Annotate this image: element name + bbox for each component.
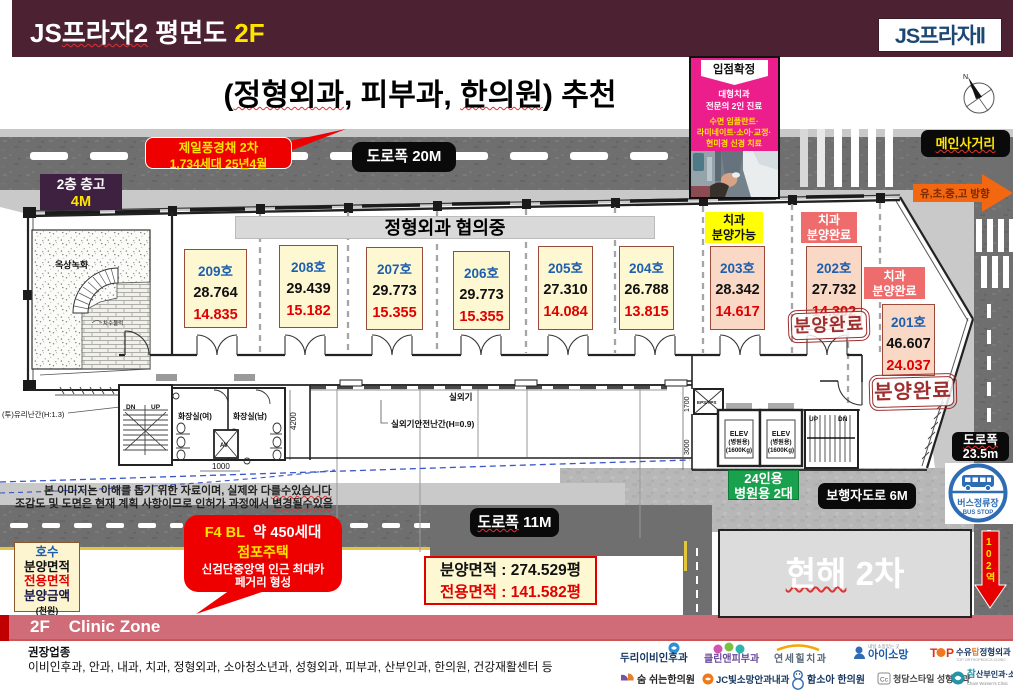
svg-text:Cham Women's Clinic: Cham Women's Clinic — [967, 681, 1008, 686]
svg-text:(1600Kg): (1600Kg) — [768, 447, 794, 454]
svg-text:JC빛소망안과내과: JC빛소망안과내과 — [716, 674, 790, 686]
svg-text:1000: 1000 — [212, 462, 230, 471]
svg-text:참: 참 — [967, 668, 976, 680]
svg-text:라미네이트·소아·교정·: 라미네이트·소아·교정· — [697, 127, 771, 137]
svg-text:입점확정: 입점확정 — [713, 62, 755, 76]
svg-text:1: 1 — [986, 537, 992, 548]
svg-text:버스정류장: 버스정류장 — [957, 497, 999, 508]
svg-text:P: P — [946, 646, 954, 660]
svg-text:화장실(남): 화장실(남) — [233, 411, 267, 421]
svg-text:ELEV: ELEV — [772, 431, 791, 438]
svg-text:화장실(여): 화장실(여) — [178, 411, 212, 421]
svg-text:역: 역 — [986, 571, 995, 584]
svg-text:1700: 1700 — [684, 396, 691, 412]
svg-text:현미경 신경 치료: 현미경 신경 치료 — [706, 138, 763, 148]
svg-text:전문의 2인 진료: 전문의 2인 진료 — [706, 101, 763, 111]
svg-text:아이소망: 아이소망 — [868, 647, 908, 661]
svg-text:실외기안전난간(H=0.9): 실외기안전난간(H=0.9) — [391, 419, 474, 429]
svg-text:Cc: Cc — [880, 677, 889, 684]
svg-text:ELEV: ELEV — [730, 431, 749, 438]
svg-text:0: 0 — [986, 549, 992, 560]
svg-text:연세힐치과: 연세힐치과 — [774, 652, 828, 665]
svg-text:UP: UP — [151, 404, 161, 411]
svg-text:EPS/TPS: EPS/TPS — [697, 400, 716, 405]
svg-text:(병원용): (병원용) — [770, 438, 791, 446]
svg-text:대형치과: 대형치과 — [718, 89, 749, 99]
svg-text:숨 쉬는한의원: 숨 쉬는한의원 — [637, 673, 695, 686]
svg-text:내일 소망있는 곳: 내일 소망있는 곳 — [868, 643, 899, 650]
svg-text:DN: DN — [838, 416, 848, 423]
svg-text:차수블럭: 차수블럭 — [103, 319, 123, 327]
svg-text:수유탑정형외과: 수유탑정형외과 — [956, 647, 1011, 657]
svg-text:(투)유리난간(H:1.3): (투)유리난간(H:1.3) — [2, 409, 65, 419]
svg-text:유,초,중,고 방향: 유,초,중,고 방향 — [920, 187, 990, 200]
svg-text:UP: UP — [809, 416, 819, 423]
svg-text:TOP ORTHOPEDICS CLINIC: TOP ORTHOPEDICS CLINIC — [956, 658, 1006, 662]
svg-text:(1600Kg): (1600Kg) — [726, 447, 752, 454]
svg-text:AV: AV — [220, 443, 228, 449]
svg-text:수면 임플란트·: 수면 임플란트· — [709, 116, 758, 126]
svg-text:2: 2 — [986, 561, 992, 572]
svg-text:산부인과·소아과: 산부인과·소아과 — [976, 669, 1013, 679]
svg-text:BUS STOP: BUS STOP — [963, 510, 994, 516]
svg-text:두리이비인후과: 두리이비인후과 — [620, 651, 688, 664]
svg-text:클린앤피부과: 클린앤피부과 — [704, 652, 760, 665]
svg-text:(병원용): (병원용) — [728, 438, 749, 446]
svg-text:옥상녹화: 옥상녹화 — [55, 259, 89, 270]
svg-text:함소아 한의원: 함소아 한의원 — [807, 673, 865, 686]
svg-text:3000: 3000 — [684, 439, 691, 455]
svg-text:N: N — [963, 74, 968, 81]
svg-text:DN: DN — [126, 404, 136, 411]
svg-text:실외기: 실외기 — [449, 392, 472, 402]
